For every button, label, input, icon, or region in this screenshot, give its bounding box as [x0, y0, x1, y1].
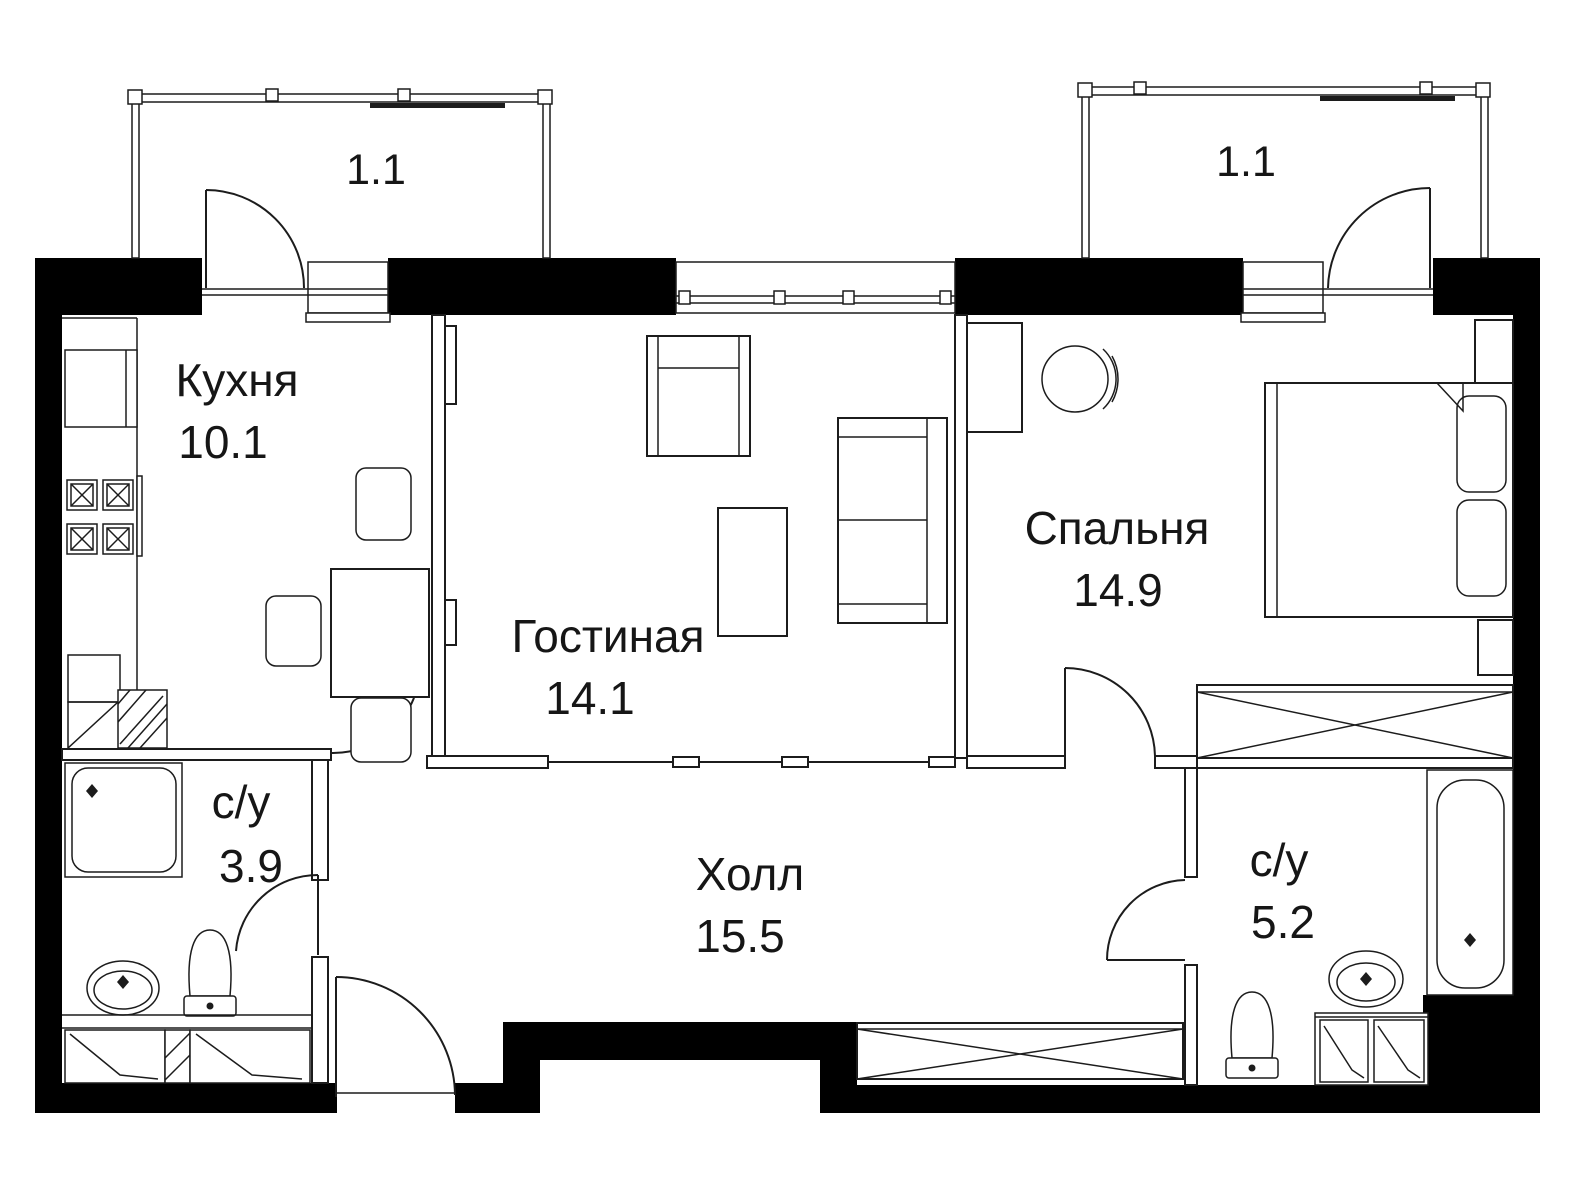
bathroom-small-counter [62, 1015, 312, 1083]
label-bedroom-area: 14.9 [1073, 564, 1163, 616]
nightstand [1478, 620, 1513, 675]
kitchen-sink-cabinet [68, 655, 167, 748]
floor-plan: Кухня 10.1 Гостиная 14.1 Спальня 14.9 Хо… [0, 0, 1574, 1200]
shower-tray [65, 763, 182, 877]
bedroom-balcony-door [1328, 188, 1430, 288]
hall-wardrobe [857, 1023, 1183, 1079]
floor-plan-canvas: Кухня 10.1 Гостиная 14.1 Спальня 14.9 Хо… [0, 0, 1574, 1200]
kitchen-stove [67, 480, 133, 554]
label-living-name: Гостиная [511, 610, 704, 662]
kitchen-balcony-door-opening [202, 289, 308, 295]
bedroom-chair [1042, 346, 1118, 412]
railing-mark [1320, 96, 1455, 101]
kitchen-table [266, 468, 429, 762]
label-living-area: 14.1 [545, 672, 635, 724]
bathroom-small-sink [87, 961, 159, 1015]
label-bath-big-name: с/у [1250, 834, 1309, 886]
kitchen-balcony-door [206, 190, 304, 288]
railing-mark [370, 103, 505, 108]
label-bedroom-name: Спальня [1025, 502, 1210, 554]
entrance-door [336, 977, 455, 1097]
living-armchair [647, 336, 750, 456]
balcony-left [128, 89, 552, 258]
bathroom-small-toilet [184, 930, 236, 1016]
coffee-table [718, 508, 787, 636]
bedroom-balcony-door-opening [1323, 289, 1433, 295]
label-balcony-right: 1.1 [1216, 138, 1276, 186]
bathroom-big-counter [1315, 1013, 1428, 1085]
living-room-window [676, 262, 955, 313]
kitchen-window [306, 262, 390, 322]
label-bath-small-name: с/у [212, 776, 271, 828]
tv-console [967, 323, 1022, 432]
bedroom-wardrobe [1197, 685, 1513, 758]
bathroom-big-door [1107, 880, 1185, 960]
label-bath-big-area: 5.2 [1251, 896, 1315, 948]
label-kitchen-area: 10.1 [178, 416, 268, 468]
bathroom-big-sink [1329, 951, 1403, 1007]
bathtub [1427, 770, 1513, 995]
balcony-right [1078, 82, 1490, 258]
bathroom-big-toilet [1226, 992, 1278, 1078]
label-balcony-left: 1.1 [346, 146, 406, 194]
bedroom-window [1241, 262, 1325, 322]
label-hall-name: Холл [696, 848, 804, 900]
bed [1265, 383, 1513, 617]
label-hall-area: 15.5 [695, 910, 785, 962]
label-kitchen-name: Кухня [175, 354, 298, 406]
label-bath-small-area: 3.9 [219, 840, 283, 892]
bedroom-door [1065, 668, 1155, 756]
duct-shaft [1475, 320, 1513, 383]
sofa [838, 418, 947, 623]
